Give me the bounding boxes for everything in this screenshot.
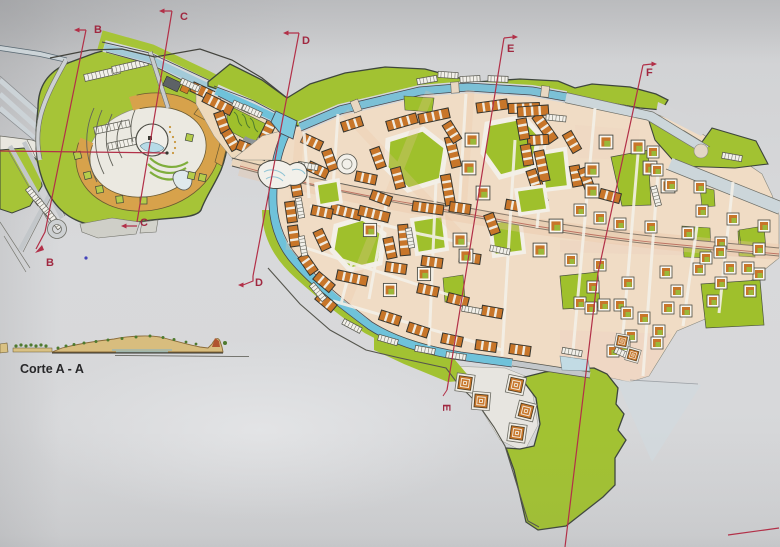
svg-text:D: D <box>302 35 310 47</box>
svg-text:E: E <box>507 43 514 55</box>
svg-text:F: F <box>646 67 653 79</box>
svg-text:Corte A - A: Corte A - A <box>20 362 84 376</box>
svg-text:B: B <box>46 257 54 269</box>
svg-text:B: B <box>94 24 102 36</box>
svg-text:D: D <box>255 277 263 289</box>
svg-text:C: C <box>180 11 188 23</box>
svg-text:C: C <box>140 217 148 229</box>
svg-text:E: E <box>440 404 452 411</box>
